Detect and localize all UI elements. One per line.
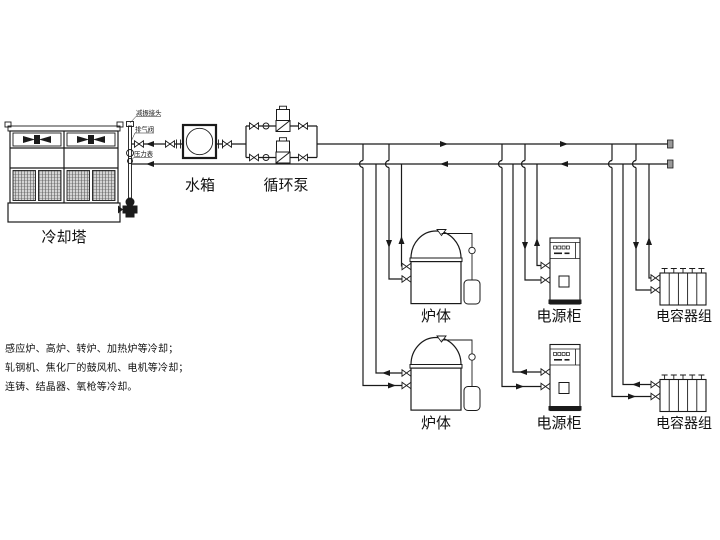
valve-icon bbox=[250, 154, 259, 160]
pump-icon bbox=[276, 106, 290, 131]
flow-arrow-right bbox=[628, 394, 636, 400]
water-tank bbox=[183, 125, 216, 158]
capacitor-branch-piping bbox=[609, 144, 661, 400]
description-line-3: 连铸、结晶器、氧枪等冷却。 bbox=[5, 380, 138, 393]
flow-arrow-left bbox=[632, 382, 640, 388]
cabinet-branch-piping bbox=[499, 144, 551, 390]
description-line-2: 轧钢机、焦化厂的鼓风机、电机等冷却； bbox=[5, 361, 189, 374]
flow-arrow-left bbox=[146, 141, 154, 147]
valve-icon bbox=[651, 393, 660, 399]
valve-icon bbox=[402, 276, 411, 282]
flow-arrow-down bbox=[522, 242, 528, 250]
valve-icon bbox=[651, 287, 660, 293]
flow-arrow-right bbox=[516, 384, 524, 390]
pump-branch-upper bbox=[250, 106, 308, 131]
flow-arrow-left bbox=[440, 161, 448, 167]
flow-arrow-up bbox=[534, 238, 540, 246]
flow-arrow-left bbox=[146, 161, 154, 167]
furnace-branch-piping bbox=[360, 144, 412, 389]
power-cabinet-lower bbox=[549, 345, 582, 411]
valve-icon bbox=[299, 154, 308, 160]
furnace-lower bbox=[410, 336, 480, 411]
valve-icon bbox=[135, 141, 144, 147]
tower-to-tank-line bbox=[132, 140, 247, 149]
circulation-pump-label: 循环泵 bbox=[263, 176, 308, 194]
pump-icon bbox=[276, 138, 290, 163]
valve-icon bbox=[402, 382, 411, 388]
tower-drain-pump bbox=[118, 198, 138, 218]
flow-arrow-right bbox=[560, 141, 568, 147]
pump-branch-lower bbox=[250, 138, 308, 163]
furnace-upper bbox=[410, 230, 480, 305]
return-main-pipe bbox=[132, 160, 674, 168]
valve-icon bbox=[166, 141, 175, 147]
air-vent-valve-label: 排气阀 bbox=[135, 125, 154, 134]
valve-icon bbox=[651, 381, 660, 387]
furnace-upper-label: 炉体 bbox=[421, 307, 451, 325]
water-tank-label: 水箱 bbox=[185, 176, 215, 194]
valve-icon bbox=[541, 262, 550, 268]
tower-top-bar bbox=[8, 126, 120, 131]
fitting-callouts: 减振接头 排气阀 压力表 bbox=[130, 108, 162, 160]
valve-icon bbox=[541, 277, 550, 283]
circulation-pumps bbox=[246, 106, 317, 163]
tower-basin bbox=[8, 203, 120, 222]
valve-icon bbox=[541, 369, 550, 375]
application-description: 感应炉、高炉、转炉、加热炉等冷却； 轧钢机、焦化厂的鼓风机、电机等冷却； 连铸、… bbox=[5, 342, 189, 393]
valve-icon bbox=[651, 275, 660, 281]
cooling-tower-label: 冷却塔 bbox=[41, 228, 86, 246]
pipe-end-cap bbox=[668, 160, 674, 168]
flow-arrow-right bbox=[388, 383, 396, 389]
flow-arrow-down bbox=[386, 240, 392, 248]
description-line-1: 感应炉、高炉、转炉、加热炉等冷却； bbox=[5, 342, 178, 355]
pressure-gauge-label: 压力表 bbox=[134, 149, 154, 158]
capacitor-bank-lower-label: 电容器组 bbox=[656, 415, 712, 432]
valve-icon bbox=[299, 123, 308, 129]
power-cabinet-upper bbox=[549, 238, 582, 304]
valve-icon bbox=[223, 141, 232, 147]
supply-main-pipe bbox=[317, 140, 673, 148]
schematic-canvas: 减振接头 排气阀 压力表 冷却塔 水箱 循环泵 炉体 炉体 电源柜 电源柜 电容… bbox=[0, 0, 720, 540]
flow-arrow-up bbox=[399, 236, 405, 244]
cooling-system-diagram: 减振接头 排气阀 压力表 冷却塔 水箱 循环泵 炉体 炉体 电源柜 电源柜 电容… bbox=[0, 0, 720, 540]
capacitor-bank-lower bbox=[660, 375, 706, 412]
flow-arrow-left bbox=[560, 161, 568, 167]
power-cabinet-upper-label: 电源柜 bbox=[536, 307, 581, 325]
flow-arrow-up bbox=[646, 237, 652, 245]
damping-joint-label: 减振接头 bbox=[136, 108, 162, 117]
tower-riser-pipe bbox=[118, 122, 138, 218]
flow-arrow-down bbox=[633, 242, 639, 250]
flow-arrow-right bbox=[440, 141, 448, 147]
flow-arrow-left bbox=[382, 370, 390, 376]
capacitor-bank-upper-label: 电容器组 bbox=[656, 308, 712, 325]
capacitor-bank-upper bbox=[660, 269, 706, 306]
cooling-tower bbox=[5, 122, 138, 223]
furnace-lower-label: 炉体 bbox=[421, 414, 451, 432]
valve-icon bbox=[250, 123, 259, 129]
valve-icon bbox=[541, 383, 550, 389]
power-cabinet-lower-label: 电源柜 bbox=[536, 414, 581, 432]
pressure-gauge-icon bbox=[127, 150, 134, 157]
flow-arrow-left bbox=[519, 369, 527, 375]
pipe-end-cap bbox=[668, 140, 674, 148]
valve-icon bbox=[402, 370, 411, 376]
valve-icon bbox=[402, 263, 411, 269]
